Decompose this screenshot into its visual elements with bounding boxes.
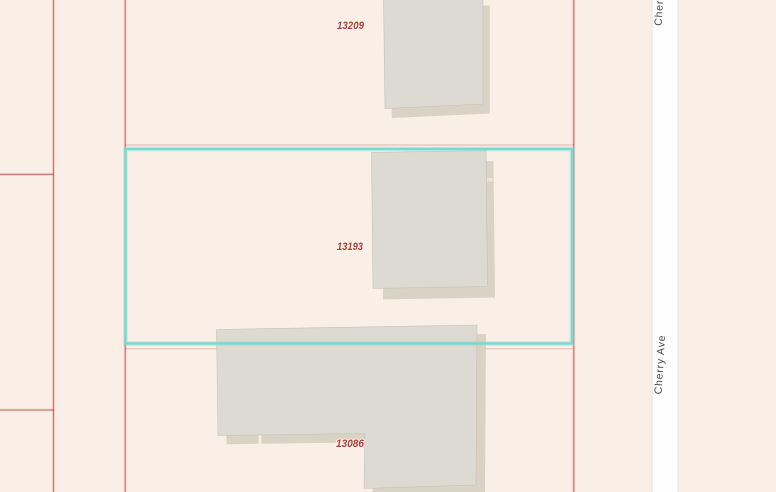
svg-text:13209: 13209: [337, 20, 365, 32]
svg-text:13193: 13193: [337, 241, 363, 253]
svg-text:13086: 13086: [336, 438, 365, 450]
